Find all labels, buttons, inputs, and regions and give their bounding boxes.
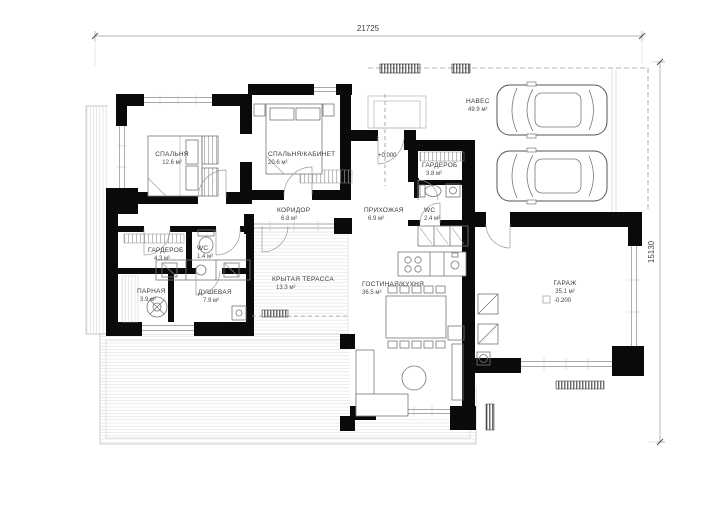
closet-rod-entry <box>420 152 464 161</box>
elevation-garage: -0.200 <box>554 298 572 304</box>
entrance-grate-small <box>452 64 470 73</box>
room-area-wc-small: 1.4 м² <box>197 254 213 260</box>
room-area-covered-terrace: 13.3 м² <box>276 285 295 291</box>
covered-terrace-floor <box>252 232 348 334</box>
room-label-sauna: ПАРНАЯ <box>137 288 166 295</box>
room-label-bedroom-office: СПАЛЬНЯ/КАБИНЕТ <box>268 151 335 158</box>
room-label-hallway: ПРИХОЖАЯ <box>364 207 404 214</box>
room-area-carport: 49.9 м² <box>468 107 487 113</box>
room-area-wc: 2.4 м² <box>424 216 440 222</box>
floor-plan-drawing: СПАЛЬНЯ 12.6 м² СПАЛЬНЯ/КАБИНЕТ 20.6 м² … <box>0 0 722 510</box>
sauna-bench <box>122 276 138 322</box>
closet-rod <box>124 234 184 243</box>
kitchen-counter <box>398 252 466 276</box>
entrance-grate <box>380 64 420 73</box>
garage-grate <box>556 381 604 389</box>
bed-2 <box>254 104 334 174</box>
floor-plan-page: СПАЛЬНЯ 12.6 м² СПАЛЬНЯ/КАБИНЕТ 20.6 м² … <box>0 0 722 510</box>
side-grate <box>486 404 494 430</box>
elevation-main-floor: +0.000 <box>378 153 397 159</box>
car-1 <box>497 82 607 138</box>
car-2 <box>497 148 607 204</box>
room-label-living-kitchen: ГОСТИНАЯ/КУХНЯ <box>362 281 424 288</box>
room-area-sauna: 3.9 м² <box>140 297 156 303</box>
room-area-bedroom: 12.6 м² <box>162 160 181 166</box>
room-label-wc: WC <box>424 207 435 214</box>
room-label-carport: НАВЕС <box>466 98 490 105</box>
room-label-garage: ГАРАЖ <box>554 280 577 287</box>
room-label-wc-small: WC <box>197 245 208 252</box>
room-label-corridor: КОРИДОР <box>277 207 310 214</box>
room-label-covered-terrace: КРЫТАЯ ТЕРАССА <box>272 276 334 283</box>
dimension-width: 21725 <box>357 24 380 33</box>
room-label-wardrobe: ГАРДЕРОБ <box>148 247 184 254</box>
room-area-wardrobe: 4.3 м² <box>154 256 170 262</box>
room-area-living-kitchen: 36.5 м² <box>362 290 381 296</box>
dimension-height: 15130 <box>647 240 656 263</box>
room-area-bedroom-office: 20.6 м² <box>268 160 287 166</box>
room-area-shower: 7.9 м² <box>203 298 219 304</box>
room-area-corridor: 6.8 м² <box>281 216 297 222</box>
room-area-hallway: 6.9 м² <box>368 216 384 222</box>
room-label-wardrobe-entry: ГАРДЕРОБ <box>422 162 458 169</box>
room-area-garage: 35.1 м² <box>555 289 574 295</box>
room-label-shower: ДУШЕВАЯ <box>198 289 232 296</box>
room-label-bedroom: СПАЛЬНЯ <box>155 151 189 158</box>
room-area-wardrobe-entry: 3.8 м² <box>426 171 442 177</box>
